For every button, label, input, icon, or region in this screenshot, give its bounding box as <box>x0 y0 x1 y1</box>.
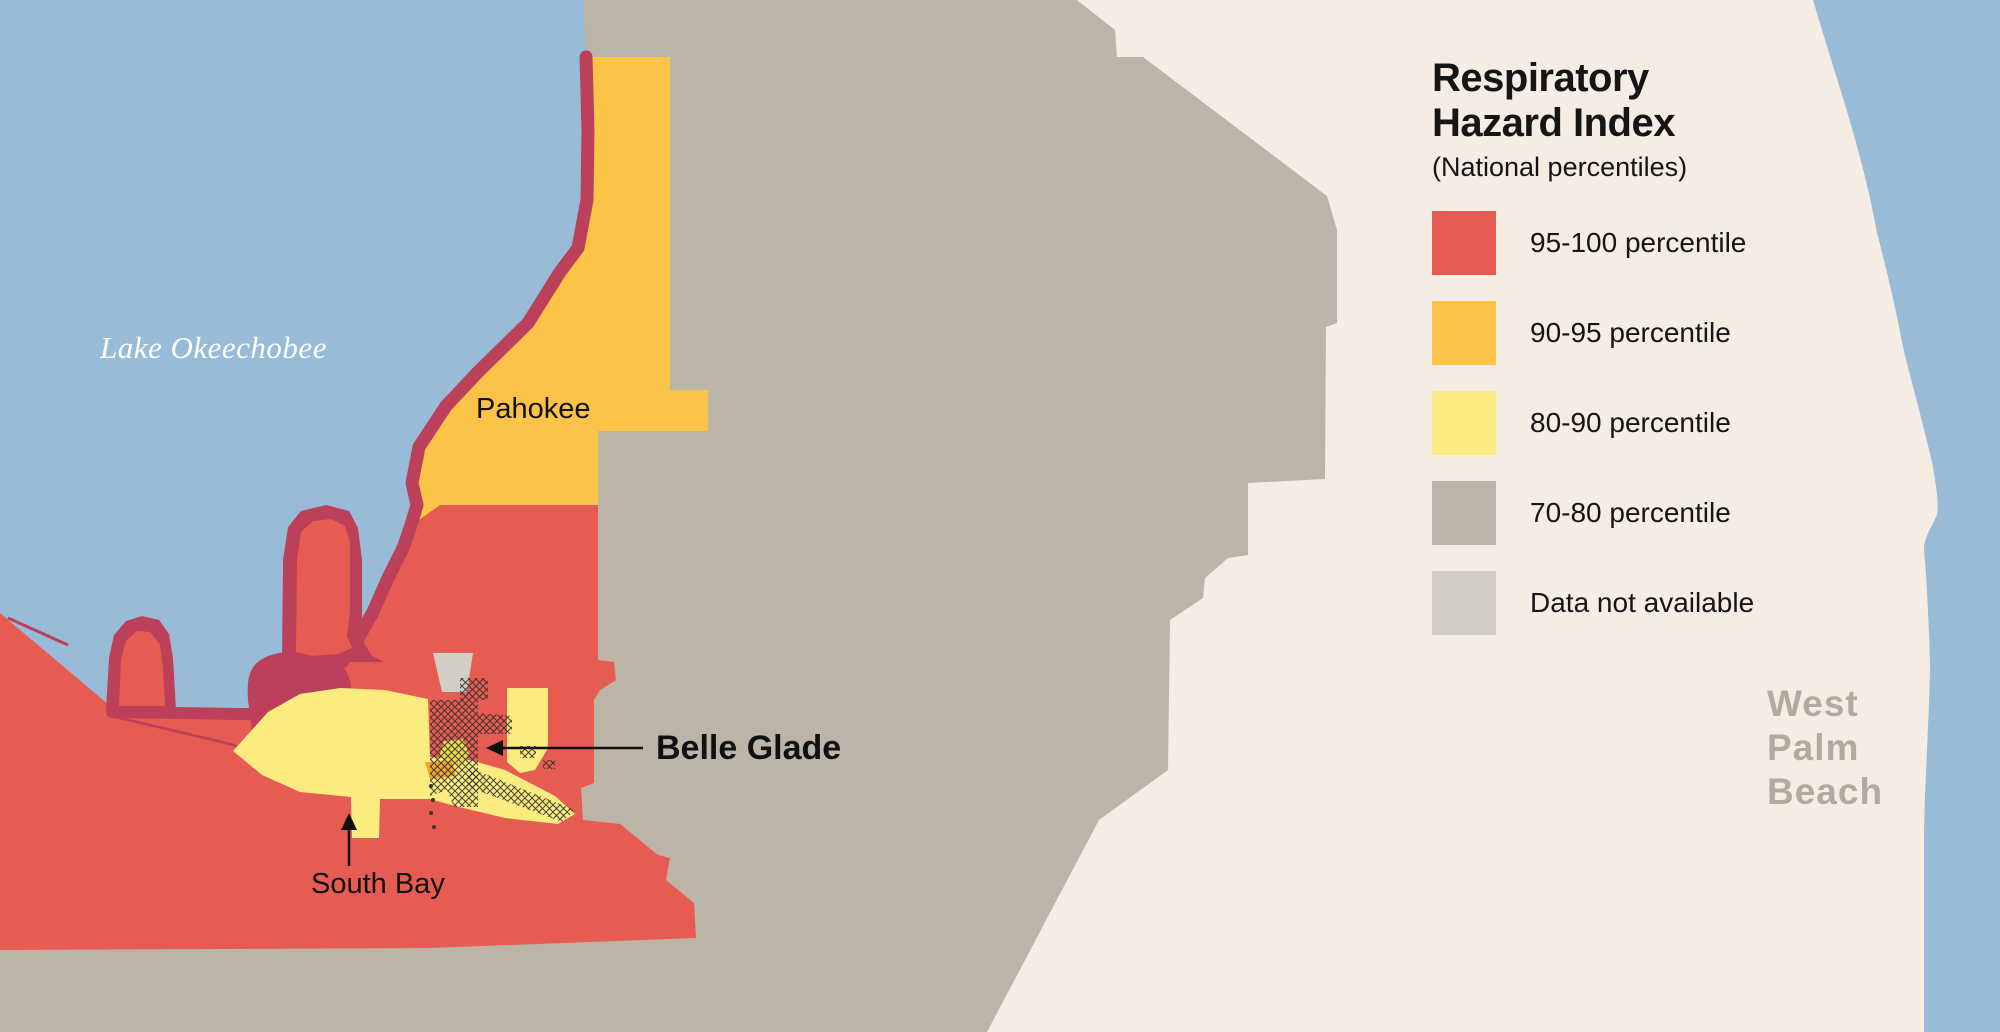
tall-peninsula-core <box>296 519 352 656</box>
belle-glade-hatch-speck <box>543 760 555 769</box>
respiratory-hazard-map-page: { "title": { "line1": "Respiratory", "li… <box>0 0 2000 1032</box>
west-peninsula-core <box>119 631 165 706</box>
choropleth-map <box>0 0 2000 1032</box>
belle-glade-hatch-spur <box>460 678 488 700</box>
